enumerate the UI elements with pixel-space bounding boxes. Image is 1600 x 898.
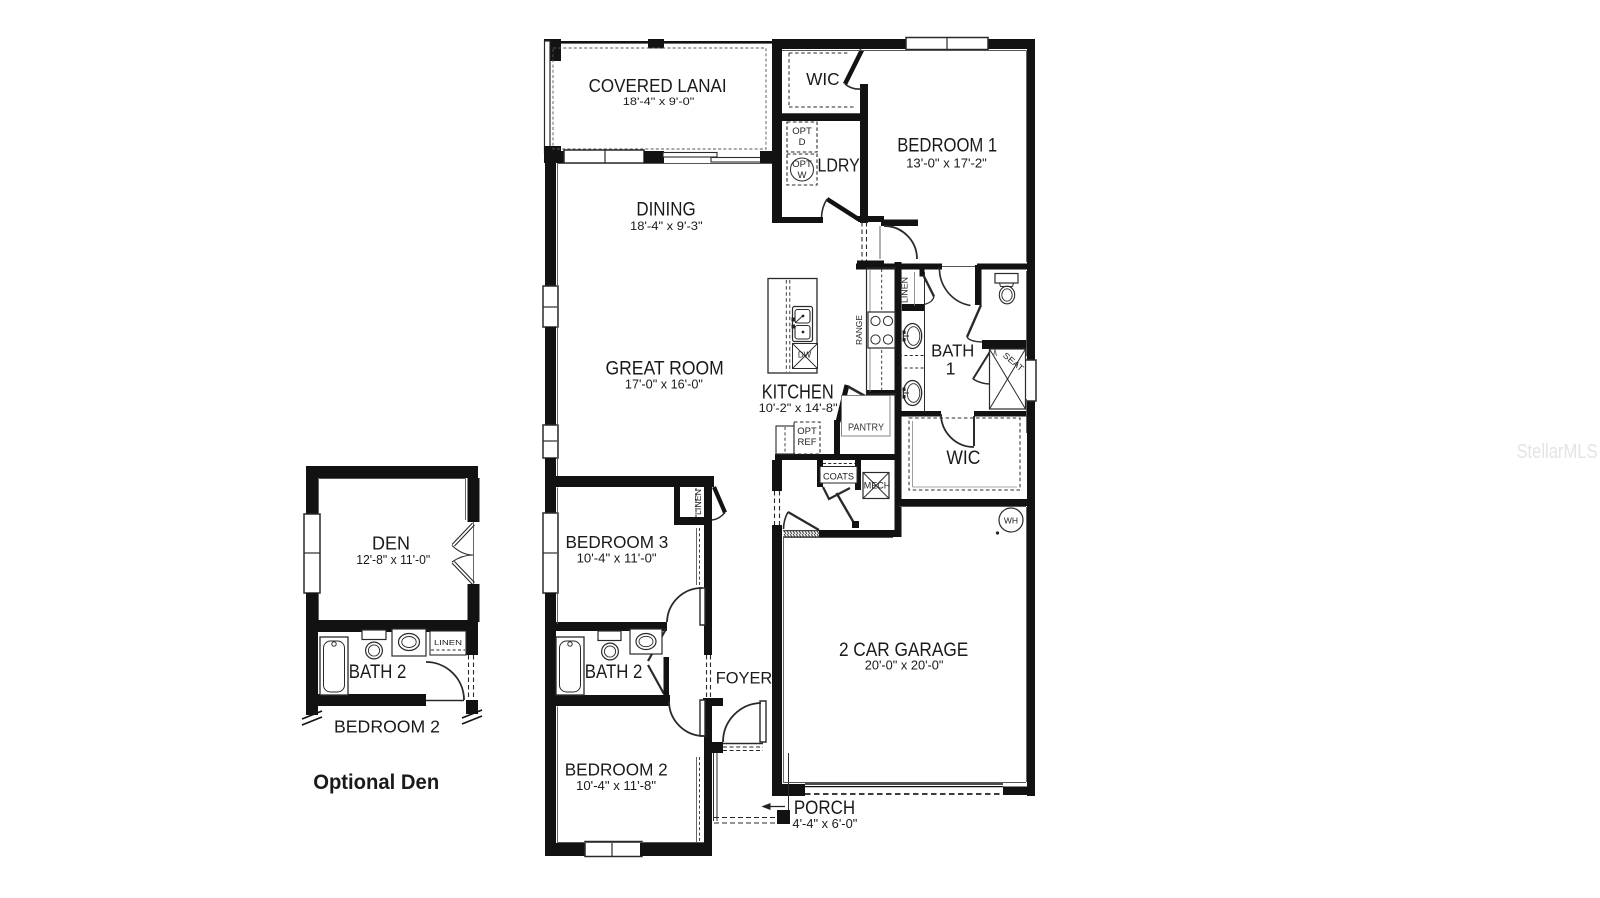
svg-text:PORCH: PORCH	[794, 798, 855, 819]
svg-text:WH: WH	[1004, 516, 1018, 526]
svg-text:BEDROOM 1: BEDROOM 1	[897, 134, 997, 156]
svg-text:DINING: DINING	[636, 200, 695, 221]
svg-text:10'-4" x 11'-0": 10'-4" x 11'-0"	[577, 551, 657, 565]
svg-text:BATH 2: BATH 2	[349, 662, 407, 683]
svg-text:FOYER: FOYER	[716, 668, 773, 687]
svg-text:BEDROOM 2: BEDROOM 2	[334, 717, 440, 737]
svg-text:RANGE: RANGE	[854, 315, 864, 345]
svg-text:LINEN: LINEN	[901, 277, 910, 303]
svg-text:OPT: OPT	[797, 426, 817, 437]
svg-text:13'-0" x 17'-2": 13'-0" x 17'-2"	[906, 156, 987, 170]
svg-text:10'-2" x 14'-8": 10'-2" x 14'-8"	[759, 401, 838, 415]
svg-text:18'-4" x 9'-0": 18'-4" x 9'-0"	[623, 96, 695, 108]
svg-text:PANTRY: PANTRY	[848, 423, 884, 434]
svg-text:WIC: WIC	[806, 69, 840, 89]
svg-text:COVERED LANAI: COVERED LANAI	[589, 76, 727, 96]
svg-text:WIC: WIC	[946, 448, 980, 469]
svg-text:OPT: OPT	[792, 126, 812, 137]
svg-text:BATH: BATH	[931, 341, 974, 361]
svg-text:OPT: OPT	[792, 159, 812, 170]
svg-text:W: W	[798, 170, 807, 181]
svg-text:Optional Den: Optional Den	[313, 770, 439, 794]
svg-text:17'-0" x 16'-0": 17'-0" x 16'-0"	[625, 377, 703, 391]
svg-text:18'-4" x 9'-3": 18'-4" x 9'-3"	[630, 219, 703, 233]
svg-text:BEDROOM 3: BEDROOM 3	[566, 532, 669, 552]
svg-text:D: D	[799, 137, 806, 148]
svg-text:COATS: COATS	[823, 472, 854, 483]
svg-text:MECH: MECH	[864, 481, 891, 491]
svg-text:LINEN: LINEN	[694, 489, 703, 515]
svg-text:12'-8" x 11'-0": 12'-8" x 11'-0"	[356, 553, 430, 567]
svg-text:BEDROOM 2: BEDROOM 2	[565, 760, 668, 780]
svg-text:LINEN: LINEN	[434, 638, 462, 647]
svg-text:StellarMLS: StellarMLS	[1517, 441, 1598, 463]
svg-text:REF: REF	[798, 437, 817, 448]
svg-text:DEN: DEN	[372, 534, 410, 554]
svg-text:BATH 2: BATH 2	[585, 662, 643, 683]
svg-text:4'-4" x 6'-0": 4'-4" x 6'-0"	[792, 817, 857, 831]
svg-text:10'-4" x 11'-8": 10'-4" x 11'-8"	[576, 779, 656, 793]
svg-text:DW: DW	[798, 351, 812, 360]
svg-text:LDRY: LDRY	[817, 155, 859, 175]
svg-text:1: 1	[946, 359, 956, 379]
svg-text:20'-0" x 20'-0": 20'-0" x 20'-0"	[865, 658, 944, 673]
